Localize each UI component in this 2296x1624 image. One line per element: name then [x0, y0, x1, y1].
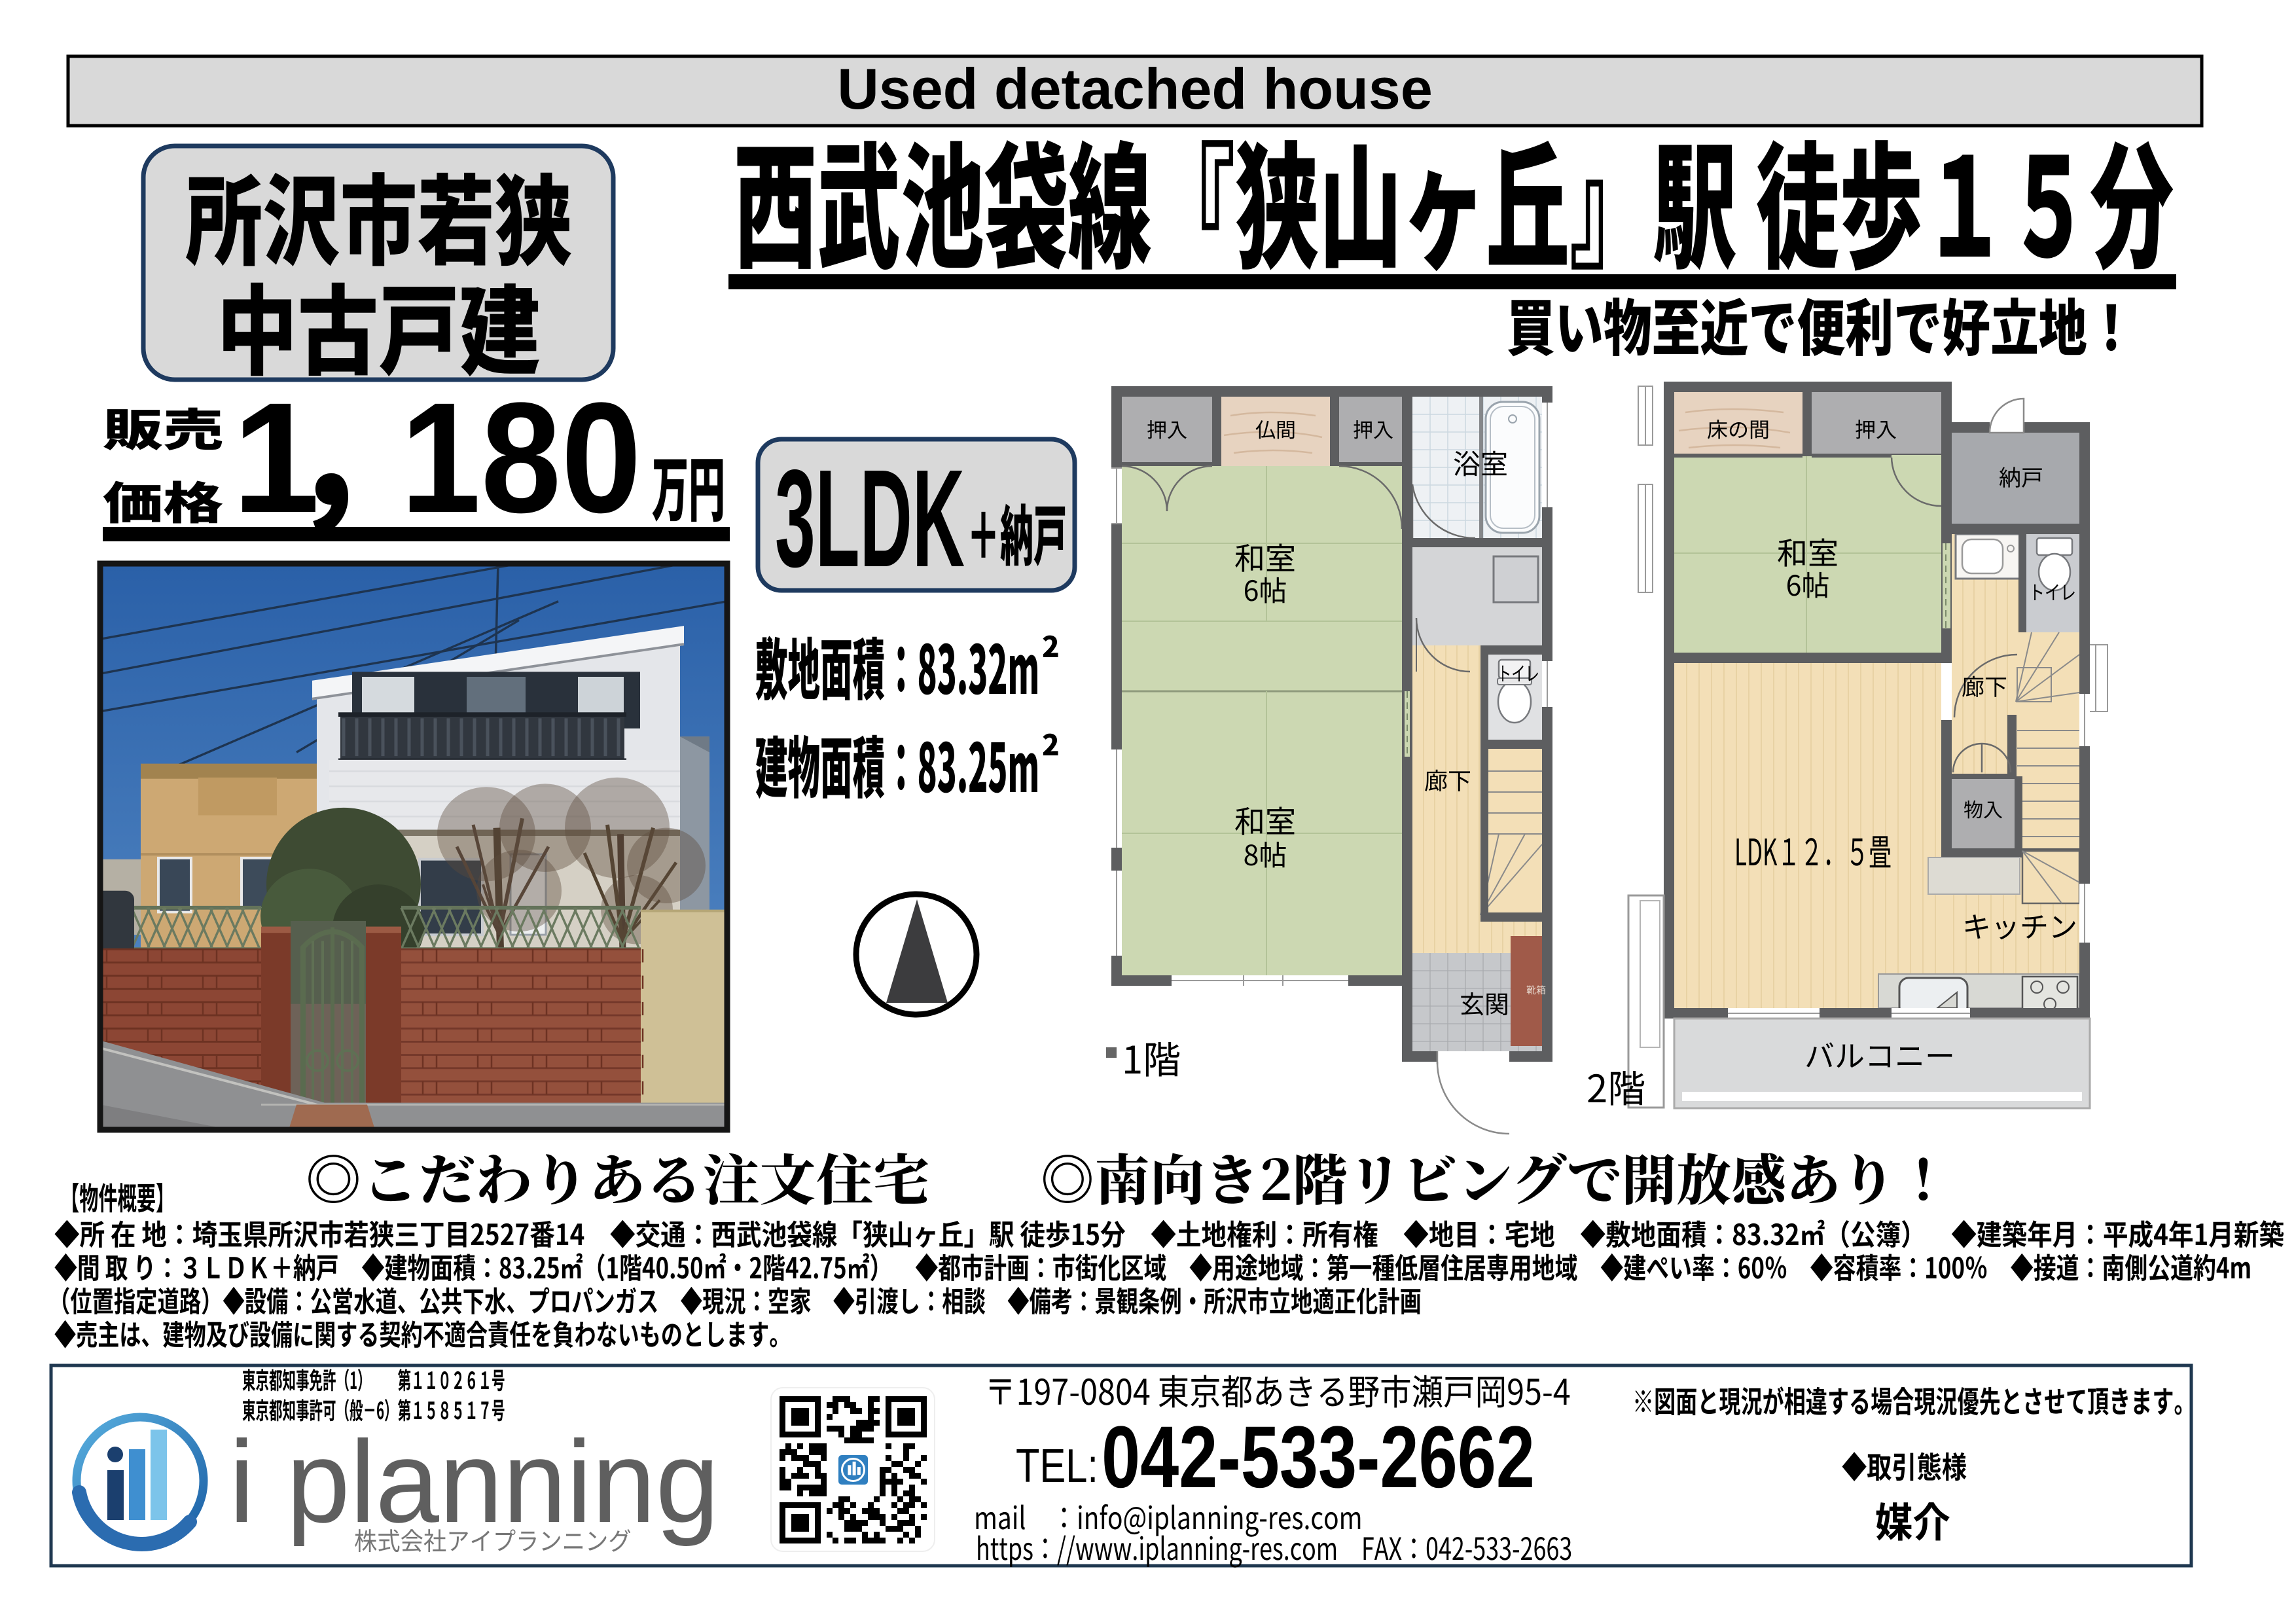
svg-text:042-533-2662: 042-533-2662: [1102, 1409, 1535, 1506]
svg-text:i planning: i planning: [229, 1416, 719, 1547]
svg-text:TEL:: TEL:: [1016, 1440, 1098, 1492]
svg-text:180: 180: [401, 370, 641, 545]
svg-text:Used detached house: Used detached house: [837, 56, 1433, 121]
svg-text:3LDK: 3LDK: [775, 441, 965, 596]
svg-text:1: 1: [232, 370, 319, 545]
